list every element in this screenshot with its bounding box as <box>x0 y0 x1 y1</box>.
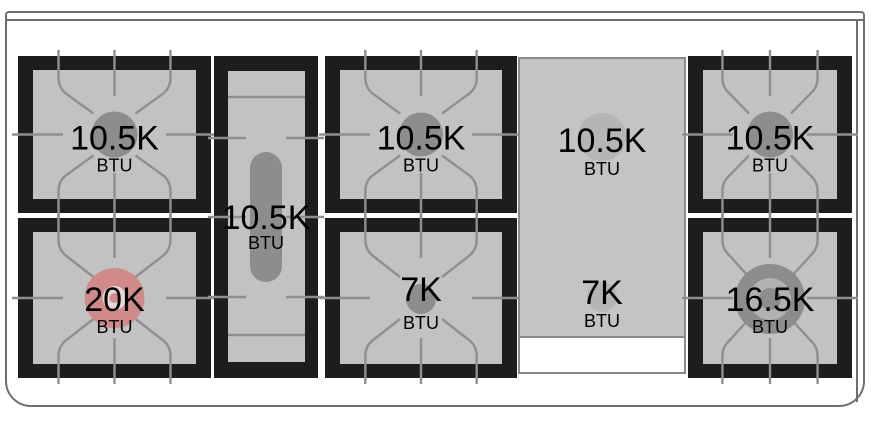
btu-value-label: 10.5K <box>222 199 311 237</box>
btu-unit-label: BTU <box>752 156 788 176</box>
btu-unit-label: BTU <box>403 156 439 176</box>
btu-unit-label: BTU <box>520 158 684 180</box>
btu-value-label: 10.5K <box>726 120 815 158</box>
btu-value-label: 10.5K <box>377 120 466 158</box>
btu-value-label: 7K <box>400 271 442 309</box>
btu-value-label: 20K <box>84 281 145 319</box>
burner-section-rear-right: 10.5KBTU <box>680 48 860 221</box>
griddle-section: 10.5KBTU7KBTU <box>518 57 686 374</box>
btu-value-label: 7K <box>520 273 684 313</box>
btu-unit-label: BTU <box>403 313 439 333</box>
btu-value-label: 10.5K <box>70 120 159 158</box>
btu-unit-label: BTU <box>97 317 133 337</box>
burner-section-front-center: 7KBTU <box>317 210 525 386</box>
oval-burner-section: 10.5KBTU <box>206 48 326 386</box>
burner-section-front-left: 20KBTU <box>10 210 219 386</box>
btu-value-label: 16.5K <box>726 281 815 319</box>
burner-section-rear-left: 10.5KBTU <box>10 48 219 221</box>
btu-unit-label: BTU <box>520 310 684 332</box>
btu-unit-label: BTU <box>752 317 788 337</box>
griddle-white-strip <box>520 336 684 372</box>
burner-section-rear-center: 10.5KBTU <box>317 48 525 221</box>
burner-section-front-right: 16.5KBTU <box>680 210 860 386</box>
btu-unit-label: BTU <box>97 156 133 176</box>
cooktop-top-trim-line <box>5 19 865 21</box>
cooktop-diagram: 10.5KBTU20KBTU10.5KBTU10.5KBTU7KBTU10.5K… <box>0 0 872 424</box>
btu-value-label: 10.5K <box>520 121 684 161</box>
btu-unit-label: BTU <box>248 233 284 253</box>
